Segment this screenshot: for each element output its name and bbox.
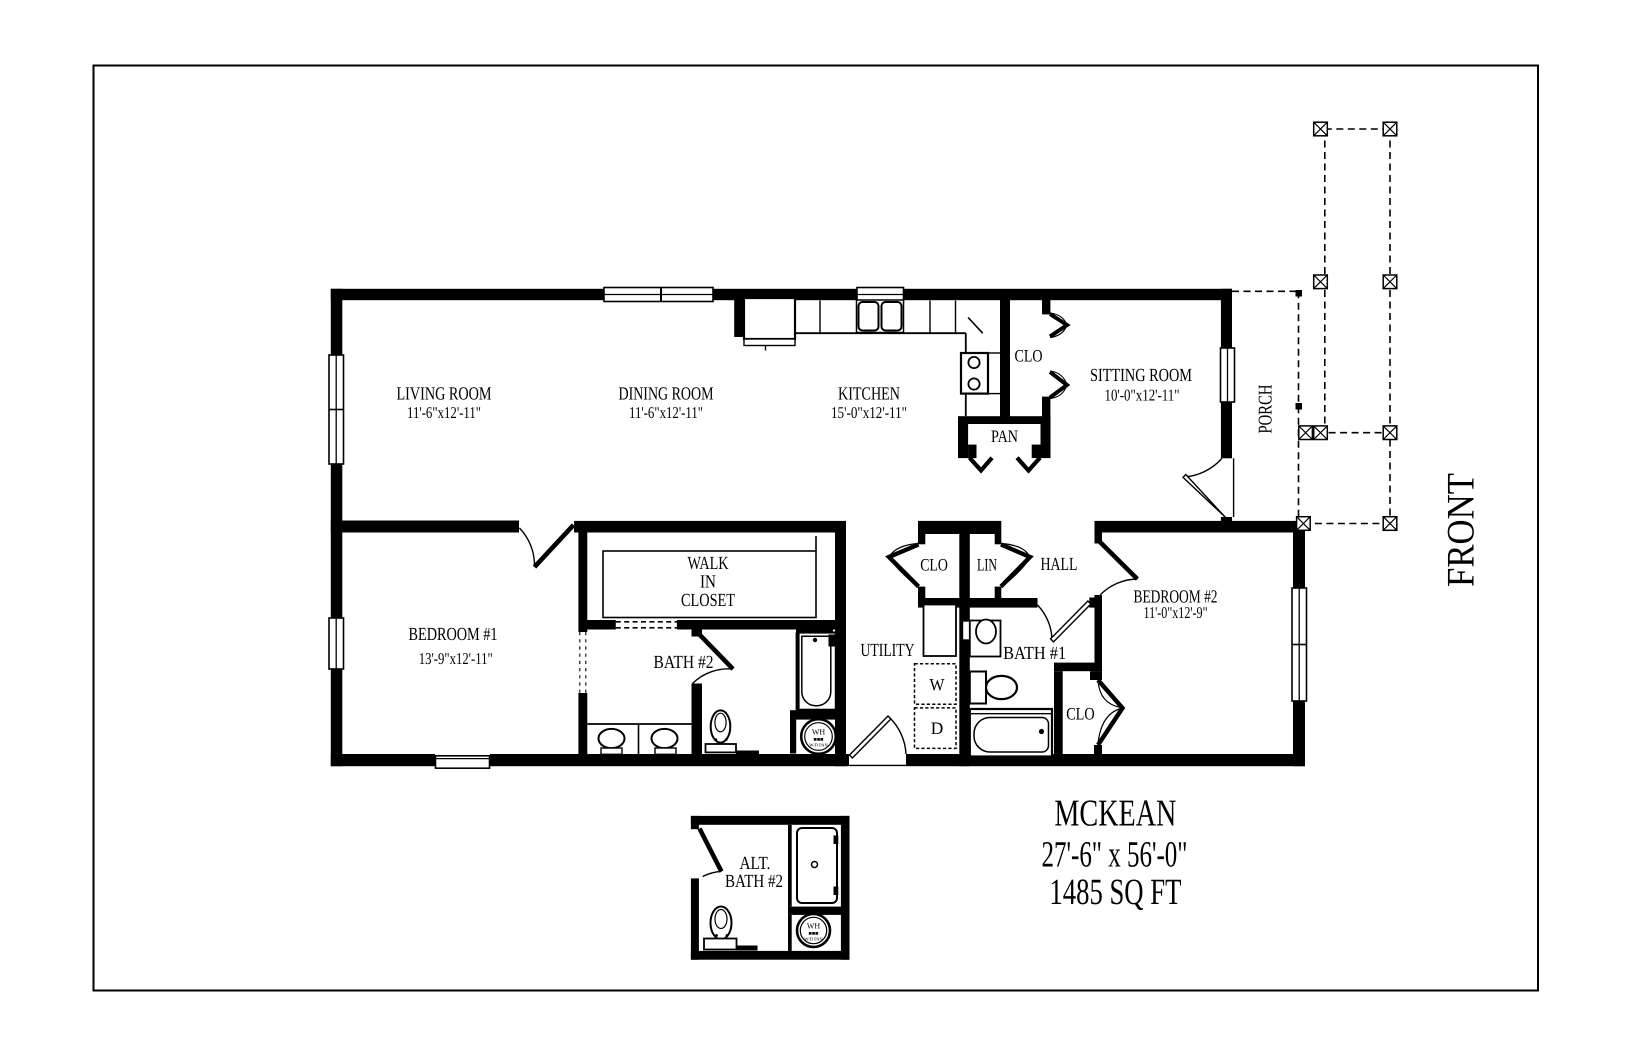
svg-text:CLO: CLO <box>1015 346 1043 366</box>
svg-text:UTILITY: UTILITY <box>861 641 915 661</box>
svg-text:SITTING ROOM: SITTING ROOM <box>1090 366 1192 386</box>
svg-text:IN: IN <box>700 573 716 593</box>
svg-text:LIN: LIN <box>977 555 997 575</box>
svg-text:BEDROOM #1: BEDROOM #1 <box>409 625 498 645</box>
svg-text:ALT.: ALT. <box>740 854 771 874</box>
svg-text:BATH #1: BATH #1 <box>1003 644 1066 664</box>
svg-text:WH: WH <box>807 922 821 931</box>
svg-text:LIVING ROOM: LIVING ROOM <box>396 385 491 405</box>
svg-text:11'-6"x12'-11": 11'-6"x12'-11" <box>407 403 481 422</box>
svg-text:HALL: HALL <box>1040 555 1077 575</box>
svg-text:CLOSET: CLOSET <box>681 591 735 611</box>
svg-text:FRONT: FRONT <box>1440 473 1483 587</box>
svg-text:PORCH: PORCH <box>1255 384 1276 433</box>
svg-text:W/D PAN: W/D PAN <box>804 937 823 942</box>
svg-text:D: D <box>931 718 944 738</box>
svg-text:WH: WH <box>812 728 826 737</box>
svg-text:CLO: CLO <box>1066 704 1094 724</box>
svg-text:PAN: PAN <box>991 426 1018 446</box>
svg-text:BATH #2: BATH #2 <box>725 872 783 892</box>
svg-text:CLO: CLO <box>920 555 948 575</box>
svg-text:11'-6"x12'-11": 11'-6"x12'-11" <box>629 403 703 422</box>
svg-text:W: W <box>929 675 944 695</box>
svg-text:DINING ROOM: DINING ROOM <box>619 385 714 405</box>
svg-text:MCKEAN: MCKEAN <box>1054 793 1176 835</box>
svg-text:BATH #2: BATH #2 <box>653 653 713 673</box>
svg-text:W/D PAN: W/D PAN <box>809 743 828 748</box>
svg-text:1485 SQ FT: 1485 SQ FT <box>1049 872 1181 913</box>
svg-text:15'-0"x12'-11": 15'-0"x12'-11" <box>831 403 907 422</box>
svg-text:27'-6" x 56'-0": 27'-6" x 56'-0" <box>1042 834 1188 875</box>
svg-text:11'-0"x12'-9": 11'-0"x12'-9" <box>1144 603 1208 622</box>
svg-text:KITCHEN: KITCHEN <box>838 385 900 405</box>
svg-text:13'-9"x12'-11": 13'-9"x12'-11" <box>419 649 493 668</box>
svg-text:WALK: WALK <box>687 554 728 574</box>
svg-text:10'-0"x12'-11": 10'-0"x12'-11" <box>1105 386 1180 405</box>
